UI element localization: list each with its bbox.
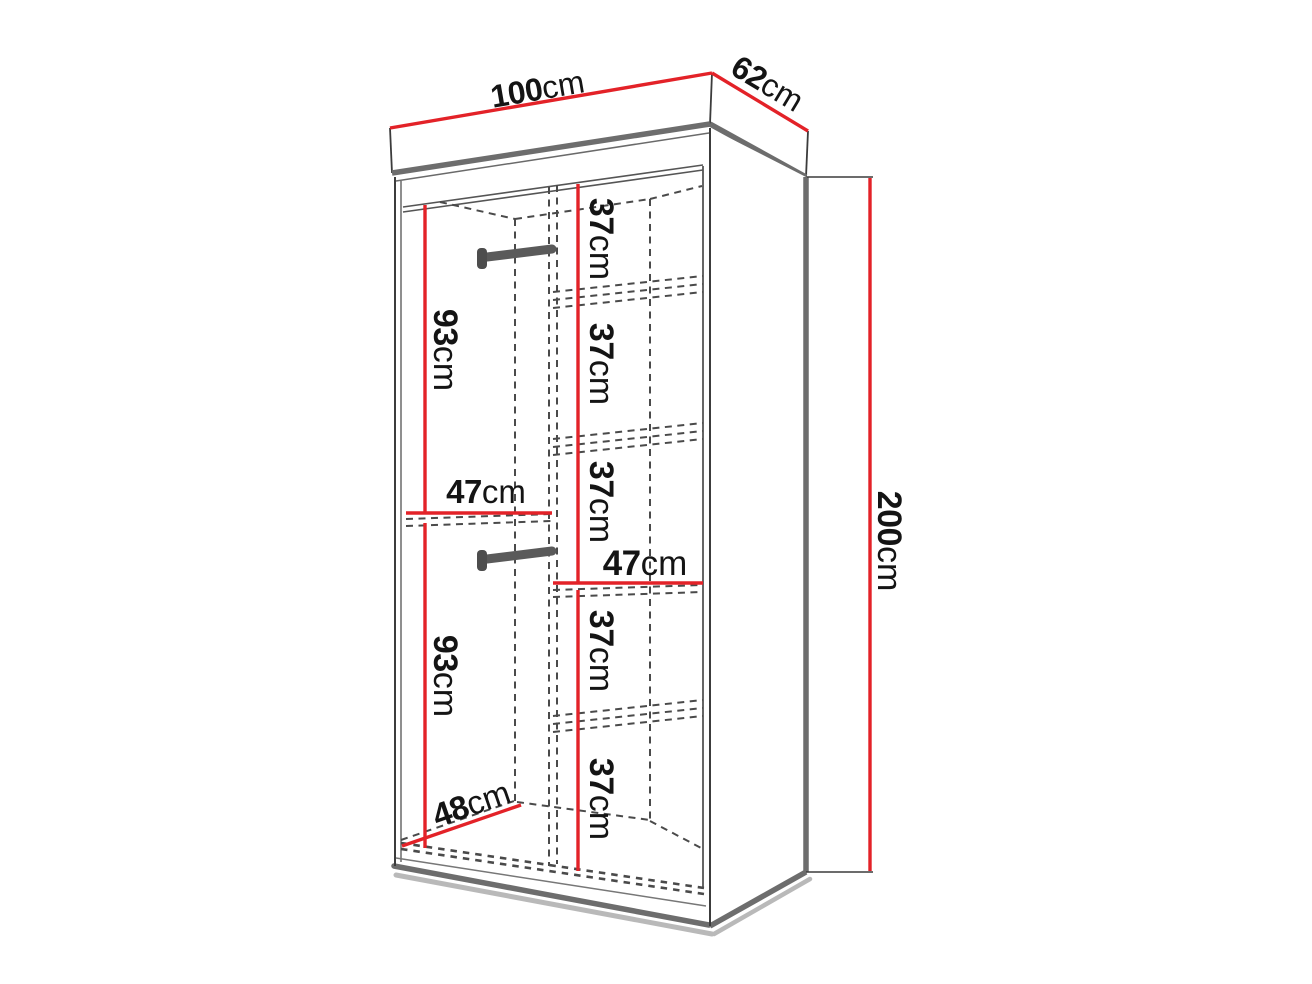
dimension-label-shelf-spacing-3: 37cm [582,461,620,543]
side-face [710,128,806,926]
dimension-label-right-width: 47cm [603,544,688,583]
dimension-label-shelf-spacing-1: 37cm [582,198,620,280]
dimension-label-hanging-lower: 93cm [426,635,464,717]
dimension-label-hanging-upper: 93cm [426,309,464,391]
dimension-label-shelf-spacing-5: 37cm [582,758,620,840]
dimension-label-height: 200cm [870,491,908,592]
dimension-label-shelf-spacing-2: 37cm [582,323,620,405]
wardrobe-dimension-diagram: 100cm 62cm 200cm 93cm 93cm 47cm 47cm 48c… [0,0,1312,984]
rod-end-cap [477,550,487,571]
diagram-canvas: 100cm 62cm 200cm 93cm 93cm 47cm 47cm 48c… [0,0,1312,984]
dimension-label-left-width: 47cm [446,473,526,510]
rod-end-cap [477,248,487,269]
dimension-label-shelf-spacing-4: 37cm [582,610,620,692]
extension-lines [806,177,873,872]
